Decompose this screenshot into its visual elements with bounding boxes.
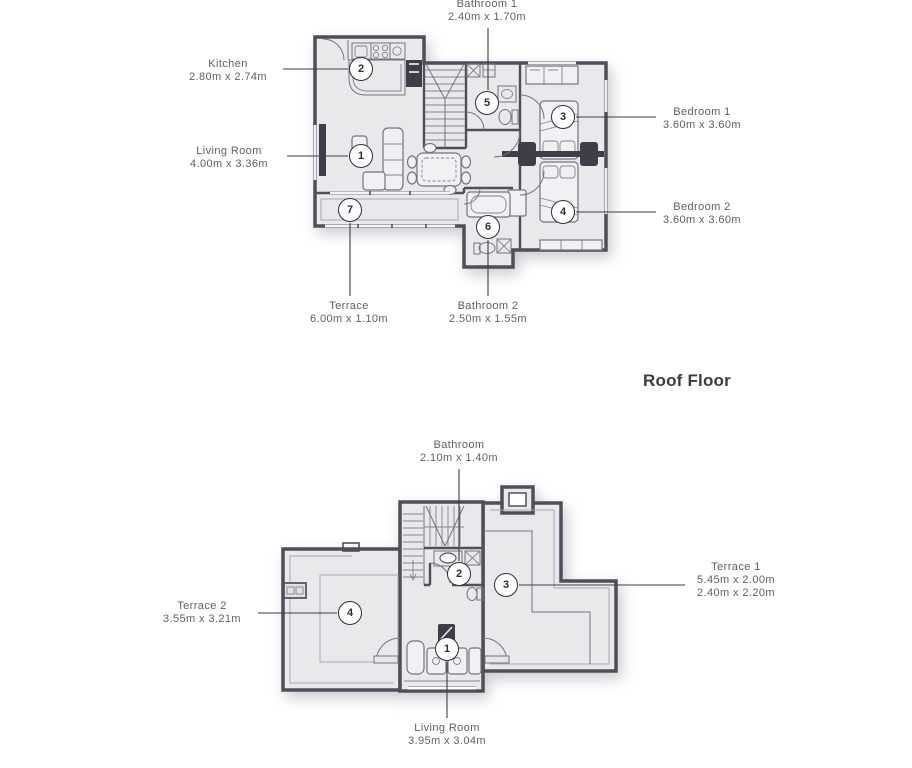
marker-bathroom1: 5 — [475, 91, 499, 115]
room-dims: 3.55m x 3.21m — [117, 613, 287, 626]
marker-roof-terrace2: 4 — [338, 601, 362, 625]
room-dims: 2.80m x 2.74m — [143, 71, 313, 84]
room-dims: 2.40m x 1.70m — [402, 11, 572, 24]
wardrobe-bedroom1 — [526, 66, 578, 84]
tv-unit — [319, 124, 326, 176]
marker-bathroom2: 6 — [476, 215, 500, 239]
desk — [508, 190, 526, 216]
marker-terrace: 7 — [338, 198, 362, 222]
room-dims: 3.60m x 3.60m — [617, 214, 787, 227]
label-roof-living: Living Room 3.95m x 3.04m — [362, 722, 532, 748]
room-name: Bathroom — [374, 439, 544, 452]
nightstand-left — [518, 142, 536, 166]
room-name: Living Room — [362, 722, 532, 735]
marker-bedroom1: 3 — [551, 105, 575, 129]
wardrobe-bedroom2 — [540, 240, 602, 250]
label-bathroom1: Bathroom 1 2.40m x 1.70m — [402, 0, 572, 24]
label-roof-terrace2: Terrace 2 3.55m x 3.21m — [117, 600, 287, 626]
upper-floor-plan — [283, 28, 656, 296]
label-bedroom1: Bedroom 1 3.60m x 3.60m — [617, 106, 787, 132]
room-name: Bathroom 2 — [403, 300, 573, 313]
label-bathroom2: Bathroom 2 2.50m x 1.55m — [403, 300, 573, 326]
floor-plans-page: Bathroom 1 2.40m x 1.70m Kitchen 2.80m x… — [0, 0, 912, 768]
room-dims: 3.60m x 3.60m — [617, 119, 787, 132]
room-dims-2: 2.40m x 2.20m — [651, 587, 821, 600]
marker-roof-bathroom: 2 — [447, 562, 471, 586]
room-dims: 2.50m x 1.55m — [403, 313, 573, 326]
room-name: Terrace 1 — [651, 561, 821, 574]
label-kitchen: Kitchen 2.80m x 2.74m — [143, 58, 313, 84]
cabinet — [407, 641, 424, 674]
label-living-room-upper: Living Room 4.00m x 3.36m — [144, 145, 314, 171]
label-roof-bathroom: Bathroom 2.10m x 1.40m — [374, 439, 544, 465]
marker-bedroom2: 4 — [551, 200, 575, 224]
room-name: Bathroom 1 — [402, 0, 572, 11]
room-dims: 4.00m x 3.36m — [144, 158, 314, 171]
label-roof-terrace1: Terrace 1 5.45m x 2.00m 2.40m x 2.20m — [651, 561, 821, 600]
marker-kitchen: 2 — [349, 57, 373, 81]
room-dims: 5.45m x 2.00m — [651, 574, 821, 587]
marker-roof-living: 1 — [435, 637, 459, 661]
room-dims: 2.10m x 1.40m — [374, 452, 544, 465]
marker-living-room: 1 — [349, 144, 373, 168]
room-name: Bedroom 2 — [617, 201, 787, 214]
section-title: Roof Floor — [587, 371, 787, 391]
label-bedroom2: Bedroom 2 3.60m x 3.60m — [617, 201, 787, 227]
room-name: Bedroom 1 — [617, 106, 787, 119]
room-name: Kitchen — [143, 58, 313, 71]
room-dims: 3.95m x 3.04m — [362, 735, 532, 748]
roof-floor-plan — [258, 469, 685, 718]
room-name: Terrace 2 — [117, 600, 287, 613]
sofa — [383, 128, 403, 190]
marker-roof-terrace1: 3 — [494, 573, 518, 597]
room-name: Living Room — [144, 145, 314, 158]
nightstand-right — [580, 142, 598, 166]
